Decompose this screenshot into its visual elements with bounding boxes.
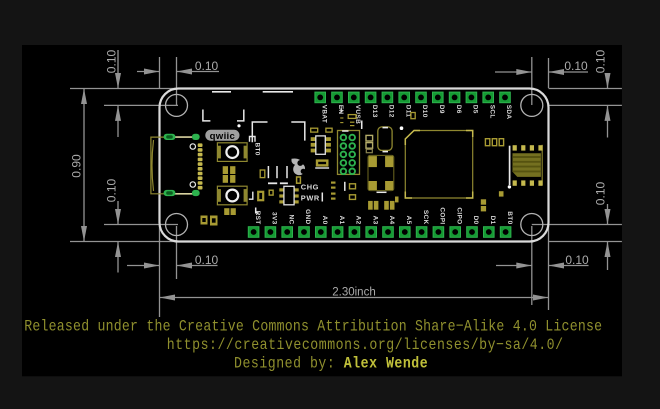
svg-text:D6: D6 (455, 105, 462, 114)
svg-text:Designed by: Alex Wende: Designed by: Alex Wende (234, 356, 428, 373)
svg-text:0.10: 0.10 (195, 59, 219, 73)
svg-text:VBAT: VBAT (320, 105, 327, 123)
svg-text:0.10: 0.10 (565, 253, 589, 267)
svg-text:0.10: 0.10 (594, 49, 608, 73)
svg-text:D12: D12 (388, 105, 395, 118)
svg-text:NC: NC (287, 215, 294, 225)
svg-text:PWR: PWR (301, 194, 320, 203)
svg-text:A0: A0 (321, 216, 328, 225)
svg-text:CHG: CHG (301, 182, 319, 191)
svg-text:3V3: 3V3 (271, 212, 278, 225)
svg-text:0.10: 0.10 (195, 253, 219, 267)
svg-text:CIPO: CIPO (455, 207, 462, 224)
svg-text:qwiic: qwiic (210, 131, 236, 142)
svg-text:SCK: SCK (422, 210, 429, 225)
svg-text:COPI: COPI (439, 207, 446, 224)
svg-text:D1: D1 (489, 216, 496, 225)
svg-text:D10: D10 (421, 105, 428, 118)
svg-text:0.10: 0.10 (105, 178, 119, 202)
svg-text:SCL: SCL (488, 105, 495, 119)
svg-text:D13: D13 (371, 105, 378, 118)
svg-text:0.10: 0.10 (105, 49, 119, 73)
svg-text:BT0: BT0 (506, 211, 513, 224)
svg-text:https://creativecommons.org/li: https://creativecommons.org/licenses/by−… (167, 337, 564, 354)
svg-text:SDA: SDA (505, 105, 512, 120)
svg-text:A1: A1 (338, 216, 345, 225)
svg-text:A3: A3 (371, 216, 378, 225)
svg-text:0.90: 0.90 (70, 154, 84, 178)
svg-text:A2: A2 (355, 216, 362, 225)
svg-text:Released under the Creative Co: Released under the Creative Commons Attr… (24, 319, 602, 336)
svg-text:2.30inch: 2.30inch (332, 287, 375, 299)
svg-text:D9: D9 (438, 105, 445, 114)
svg-text:0.10: 0.10 (594, 181, 608, 205)
svg-text:D5: D5 (472, 105, 479, 114)
svg-text:GND: GND (304, 209, 311, 224)
svg-text:A5: A5 (405, 216, 412, 225)
svg-text:0.10: 0.10 (564, 59, 588, 73)
svg-text:A4: A4 (388, 216, 395, 225)
svg-text:BT0: BT0 (254, 143, 261, 156)
svg-text:D0: D0 (472, 216, 479, 225)
